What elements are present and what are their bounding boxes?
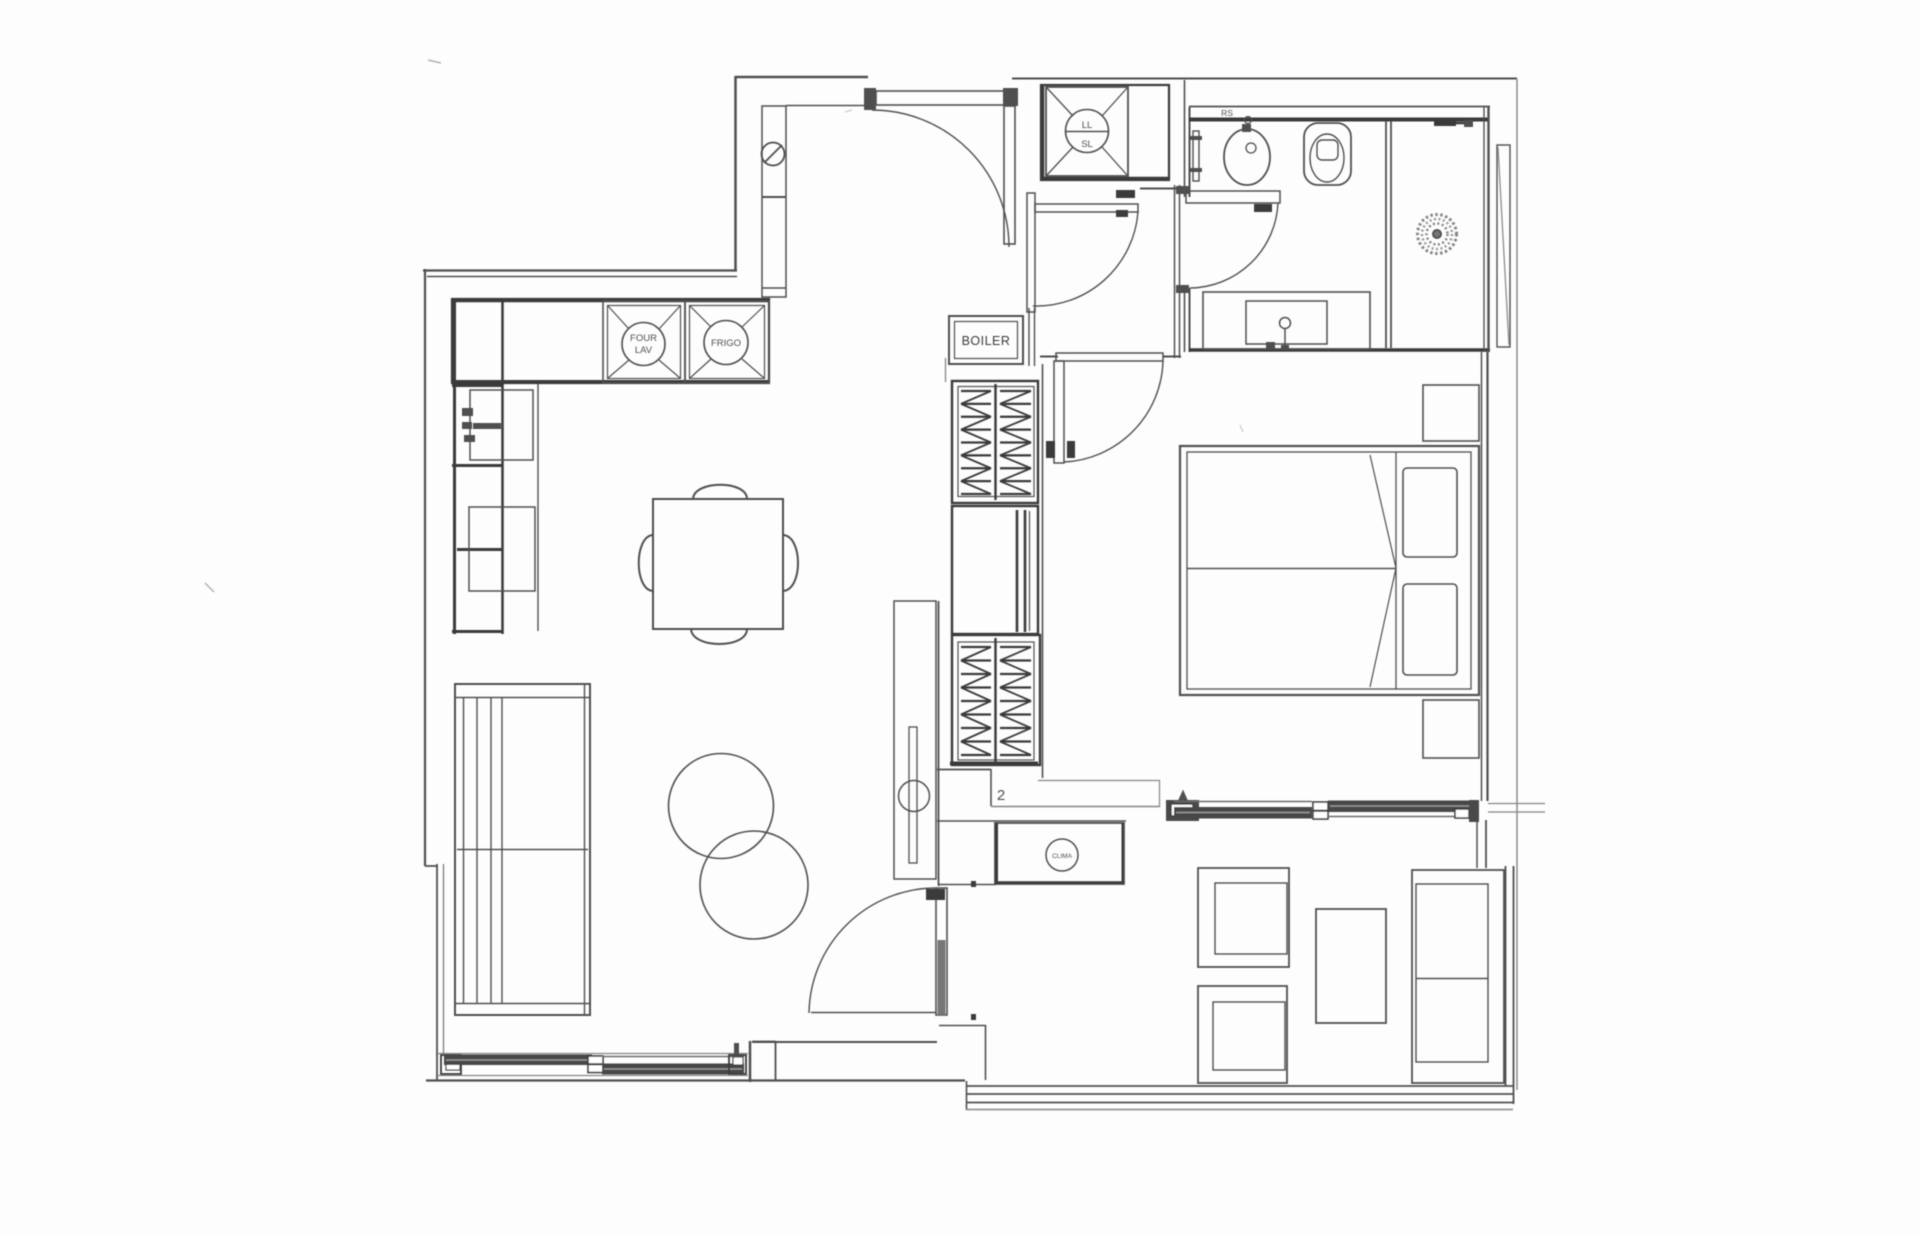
svg-text:RS: RS: [1221, 108, 1233, 118]
svg-text:LL: LL: [1082, 120, 1093, 131]
svg-text:LAV: LAV: [635, 345, 653, 356]
svg-text:CLIMA: CLIMA: [1052, 853, 1073, 860]
svg-text:2: 2: [997, 787, 1005, 804]
svg-text:SL: SL: [1081, 139, 1093, 150]
svg-text:BOILER: BOILER: [962, 334, 1011, 348]
svg-text:FRIGO: FRIGO: [711, 338, 741, 349]
svg-text:FOUR: FOUR: [630, 333, 657, 344]
